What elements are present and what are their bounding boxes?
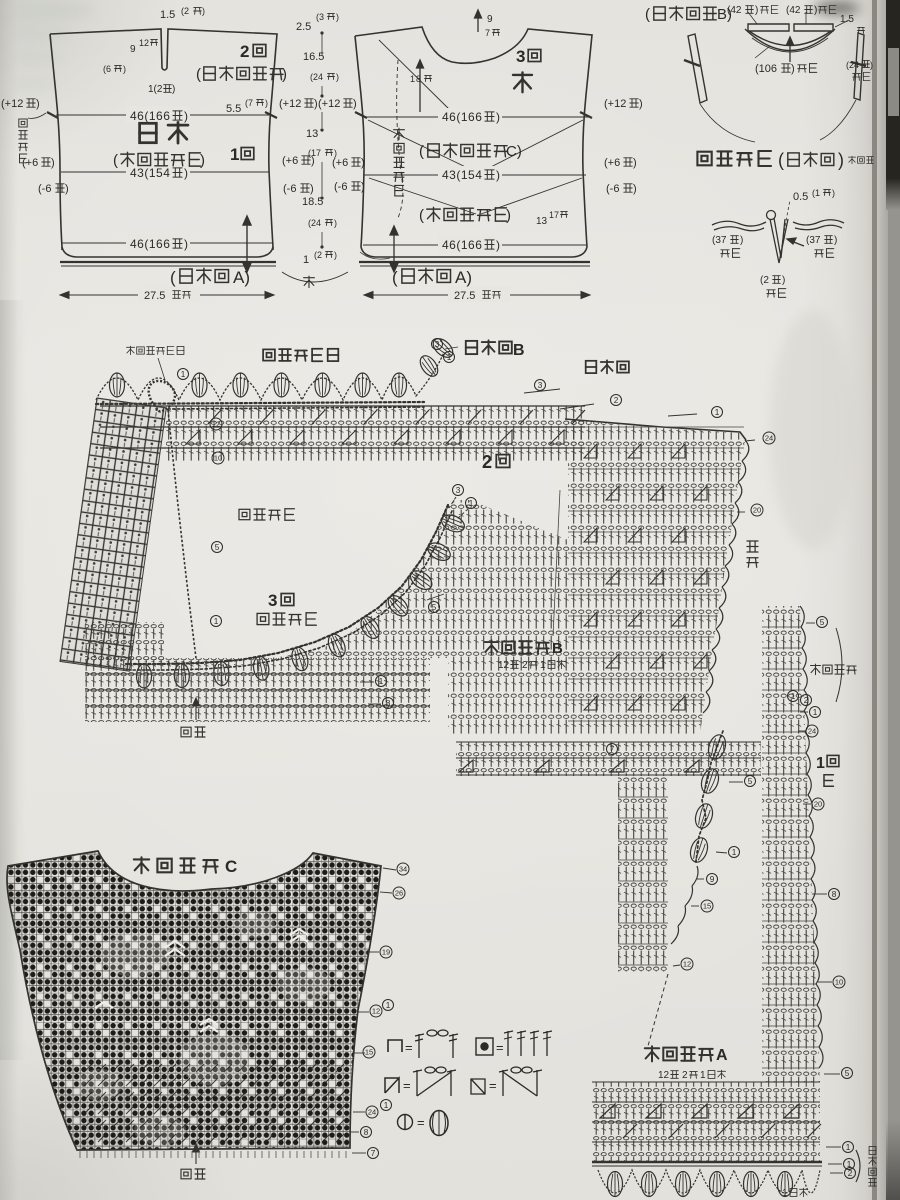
svg-text:): )	[202, 6, 205, 16]
svg-text:): )	[336, 12, 339, 22]
svg-text:): )	[361, 157, 365, 169]
svg-text:43(154: 43(154	[130, 166, 170, 180]
svg-text:1: 1	[732, 848, 737, 857]
svg-text:7: 7	[371, 1149, 376, 1158]
svg-text:(+12: (+12	[318, 98, 340, 110]
svg-text:2: 2	[848, 1169, 853, 1178]
svg-text:=: =	[489, 1078, 497, 1093]
svg-text:(+6: (+6	[604, 157, 620, 169]
svg-text:B: B	[552, 640, 563, 657]
svg-text:(2: (2	[314, 250, 322, 260]
svg-text:): )	[832, 188, 835, 198]
svg-text:2: 2	[804, 696, 809, 705]
svg-text:5: 5	[432, 603, 437, 612]
svg-text:A): A)	[455, 268, 472, 287]
svg-text:): )	[200, 152, 205, 169]
svg-text:): )	[361, 181, 365, 193]
svg-text:(24: (24	[308, 218, 321, 228]
svg-text:8: 8	[386, 699, 391, 708]
svg-text:1: 1	[379, 677, 384, 686]
svg-text:24: 24	[808, 727, 816, 736]
svg-text:(+6: (+6	[332, 157, 348, 169]
svg-text:): )	[51, 157, 55, 169]
svg-text:46(166: 46(166	[442, 110, 482, 124]
svg-text:19: 19	[382, 948, 390, 957]
svg-text:12: 12	[372, 1007, 380, 1016]
svg-text:): )	[633, 157, 637, 169]
svg-text:A): A)	[233, 268, 250, 287]
svg-text:): )	[184, 166, 188, 180]
svg-text:9: 9	[487, 14, 493, 25]
svg-text:(: (	[170, 268, 176, 287]
svg-text:15: 15	[365, 1048, 373, 1057]
svg-text:1: 1	[214, 617, 219, 626]
svg-text:): )	[755, 5, 758, 16]
svg-text:5: 5	[820, 618, 825, 627]
svg-text:46(166: 46(166	[130, 109, 170, 123]
svg-text:(17: (17	[308, 148, 321, 158]
svg-text:3: 3	[456, 486, 461, 495]
svg-text:13: 13	[536, 216, 548, 227]
svg-text:2: 2	[682, 1070, 688, 1081]
svg-text:12: 12	[139, 38, 149, 48]
svg-text:(+12: (+12	[1, 98, 23, 110]
svg-text:27.5: 27.5	[454, 290, 475, 302]
svg-text:1: 1	[384, 1101, 389, 1110]
svg-text:(3: (3	[316, 12, 324, 22]
svg-text:): )	[184, 237, 188, 251]
svg-text:3: 3	[268, 591, 277, 610]
svg-text:): )	[782, 275, 785, 286]
svg-text:8: 8	[832, 890, 837, 899]
svg-text:3: 3	[538, 381, 543, 390]
svg-text:(-6: (-6	[334, 181, 347, 193]
svg-text:(-6: (-6	[38, 183, 51, 195]
svg-text:43(154: 43(154	[442, 168, 482, 182]
svg-text:1: 1	[230, 145, 239, 164]
svg-text:9: 9	[130, 44, 136, 55]
svg-text:(+12: (+12	[604, 98, 626, 110]
svg-text:(7: (7	[245, 98, 253, 108]
svg-text:(37: (37	[806, 235, 821, 246]
svg-text:2: 2	[240, 42, 249, 61]
svg-text:(37: (37	[712, 235, 727, 246]
svg-text:(: (	[196, 66, 201, 83]
svg-text:1: 1	[447, 353, 452, 362]
svg-text:1: 1	[715, 408, 720, 417]
svg-text:(: (	[392, 268, 398, 287]
svg-text:): )	[814, 5, 817, 16]
svg-text:): )	[870, 60, 873, 70]
svg-text:(: (	[419, 207, 424, 224]
svg-text:46(166: 46(166	[442, 238, 482, 252]
svg-text:): )	[633, 183, 637, 195]
svg-text:=: =	[405, 1040, 413, 1055]
svg-text:5.5: 5.5	[226, 103, 241, 115]
svg-text:13: 13	[306, 128, 318, 140]
svg-text:): )	[36, 98, 40, 110]
svg-text:15: 15	[703, 902, 711, 911]
svg-text:12: 12	[683, 960, 691, 969]
svg-text:2.5: 2.5	[296, 21, 311, 33]
svg-text:17: 17	[549, 210, 559, 220]
svg-text:1: 1	[410, 74, 415, 84]
svg-text:(-6: (-6	[283, 183, 296, 195]
svg-text:2: 2	[522, 660, 528, 671]
svg-text:=: =	[403, 1078, 411, 1093]
svg-text:1: 1	[816, 755, 825, 772]
svg-text:(2: (2	[181, 6, 189, 16]
svg-text:): )	[184, 109, 188, 123]
svg-text:=: =	[496, 1040, 504, 1055]
svg-text:A: A	[716, 1047, 728, 1064]
svg-text:1: 1	[846, 1143, 851, 1152]
svg-text:12: 12	[658, 1070, 670, 1081]
svg-text:): )	[496, 168, 500, 182]
svg-text:1(2: 1(2	[148, 84, 163, 95]
svg-text:1.5: 1.5	[840, 14, 854, 25]
svg-text:(: (	[645, 6, 650, 23]
svg-text:): )	[496, 110, 500, 124]
svg-text:1: 1	[791, 692, 796, 701]
svg-text:9: 9	[710, 875, 715, 884]
svg-text:0.5: 0.5	[793, 191, 808, 203]
svg-text:8: 8	[416, 74, 421, 84]
svg-text:2: 2	[482, 452, 492, 472]
svg-text:12: 12	[212, 420, 220, 429]
svg-text:): )	[496, 238, 500, 252]
svg-text:24: 24	[765, 434, 773, 443]
svg-text:1: 1	[813, 708, 818, 717]
svg-text:3: 3	[435, 340, 440, 349]
svg-text:1: 1	[540, 660, 546, 671]
svg-text:): )	[639, 98, 643, 110]
svg-text:): )	[65, 183, 69, 195]
svg-text:): )	[506, 207, 511, 224]
svg-text:): )	[334, 148, 337, 158]
svg-text:(106: (106	[755, 63, 777, 75]
svg-text:(2: (2	[760, 275, 769, 286]
svg-text:7: 7	[485, 28, 490, 38]
svg-text:): )	[310, 183, 314, 195]
svg-text:): )	[172, 84, 175, 95]
svg-text:): )	[336, 72, 339, 82]
svg-text:C: C	[225, 857, 237, 876]
svg-text:(: (	[419, 143, 424, 160]
svg-text:(24: (24	[310, 72, 323, 82]
svg-text:(42: (42	[727, 5, 742, 16]
svg-text:20: 20	[753, 506, 761, 515]
svg-text:=: =	[417, 1115, 425, 1130]
svg-text:(: (	[778, 150, 784, 170]
svg-text:): )	[353, 98, 357, 110]
svg-text:): )	[791, 63, 795, 75]
svg-text:20: 20	[814, 800, 822, 809]
svg-text:1: 1	[181, 370, 186, 379]
svg-text:): )	[740, 235, 743, 246]
svg-text:18.5: 18.5	[302, 196, 323, 208]
svg-text:46(166: 46(166	[130, 237, 170, 251]
svg-text:(6: (6	[103, 64, 111, 74]
svg-text:(+12: (+12	[279, 98, 301, 110]
svg-text:2: 2	[614, 396, 619, 405]
svg-text:3: 3	[516, 47, 525, 66]
svg-text:5: 5	[748, 777, 753, 786]
svg-text:1: 1	[303, 254, 309, 266]
svg-text:(42: (42	[786, 5, 801, 16]
svg-text:1: 1	[386, 1001, 391, 1010]
svg-text:27.5: 27.5	[144, 290, 165, 302]
svg-text:): )	[838, 150, 844, 170]
svg-text:): )	[334, 218, 337, 228]
svg-text:1: 1	[469, 499, 474, 508]
svg-text:10: 10	[214, 454, 222, 463]
svg-text:5: 5	[215, 543, 220, 552]
svg-text:7: 7	[610, 745, 615, 754]
svg-text:): )	[123, 64, 126, 74]
svg-text:(+6: (+6	[282, 155, 298, 167]
svg-text:): )	[834, 235, 837, 246]
svg-text:34: 34	[399, 865, 407, 874]
svg-text:(24: (24	[846, 60, 859, 70]
svg-text:1: 1	[700, 1070, 706, 1081]
svg-text:): )	[265, 98, 268, 108]
svg-text:): )	[282, 66, 287, 83]
svg-text:1.5: 1.5	[160, 9, 175, 21]
svg-text:10: 10	[835, 978, 843, 987]
svg-text:B: B	[513, 342, 525, 359]
svg-text:16.5: 16.5	[303, 51, 324, 63]
svg-text:12: 12	[498, 660, 510, 671]
svg-text:C): C)	[506, 143, 522, 160]
svg-text:(-6: (-6	[606, 183, 619, 195]
svg-text:(: (	[113, 152, 118, 169]
svg-text:1: 1	[782, 1188, 788, 1199]
svg-text:5: 5	[845, 1069, 850, 1078]
svg-text:): )	[334, 250, 337, 260]
svg-text:26: 26	[395, 889, 403, 898]
svg-text:8: 8	[364, 1128, 369, 1137]
svg-text:24: 24	[368, 1108, 376, 1117]
svg-text:(1: (1	[812, 188, 820, 198]
